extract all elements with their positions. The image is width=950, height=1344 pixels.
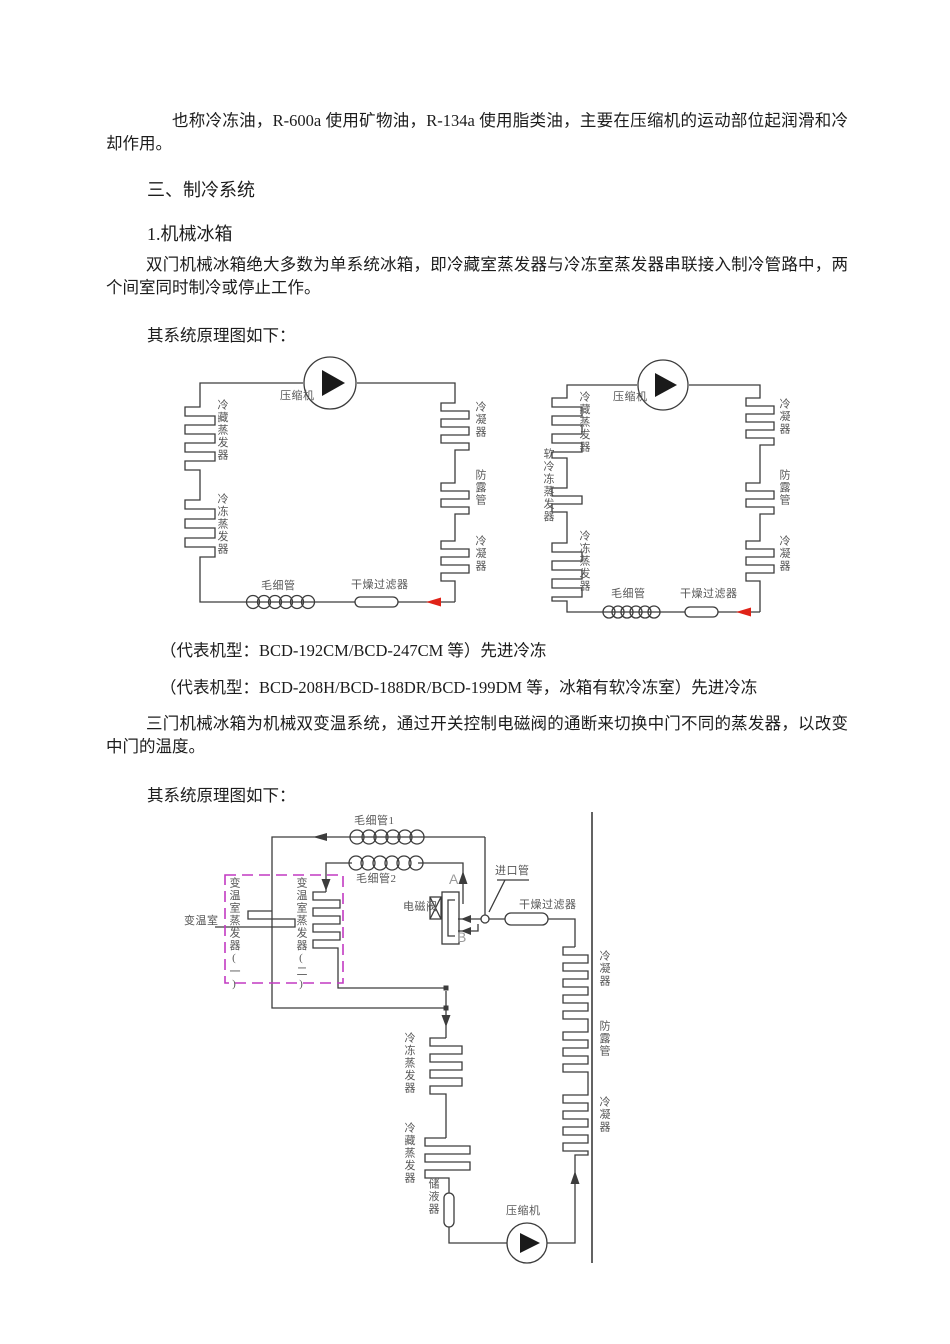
document-page: 也称冷冻油，R-600a 使用矿物油，R-134a 使用脂类油，主要在压缩机的运… [0, 0, 950, 1344]
arrow-left [313, 833, 327, 841]
compressor-triangle [322, 370, 345, 396]
model-caption-1: （代表机型：BCD-192CM/BCD-247CM 等）先进冷冻 [160, 637, 546, 661]
anti-dew-pipe-label: 防露管 [777, 469, 790, 507]
dry-filter-label: 干燥过滤器 [519, 899, 577, 912]
condenser-label: 冷凝器 [473, 401, 486, 439]
valve-port-a-label: A [449, 873, 459, 886]
condenser-label: 冷凝器 [597, 1096, 610, 1134]
dry-filter-symbol [505, 913, 548, 925]
variable-room-label: 变温室 [184, 915, 219, 928]
var-evaporator1-label: 变温室蒸发器(一) [227, 877, 240, 992]
paragraph-two-door: 双门机械冰箱绝大多数为单系统冰箱，即冷藏室蒸发器与冷冻室蒸发器串联接入制冷管路中… [106, 254, 848, 299]
condenser-label: 冷凝器 [597, 950, 610, 988]
pipe-right-loop [357, 383, 469, 602]
capillary-label: 毛细管 [611, 588, 646, 601]
accumulator-symbol [444, 1193, 454, 1227]
diagram-intro-1: 其系统原理图如下： [147, 322, 296, 346]
variable-room-box [225, 875, 343, 983]
dry-filter-symbol [355, 597, 398, 607]
arrow-down-junction [442, 1015, 451, 1027]
compressor-label: 压缩机 [506, 1205, 541, 1218]
flow-arrow [426, 598, 441, 607]
paragraph-oil: 也称冷冻油，R-600a 使用矿物油，R-134a 使用脂类油，主要在压缩机的运… [106, 110, 848, 155]
diagram1-pipes [185, 357, 469, 609]
freezer-evaporator-label: 冷冻蒸发器 [402, 1032, 415, 1095]
condenser-column [547, 947, 588, 1243]
compressor-triangle [655, 373, 677, 397]
paragraph-three-door: 三门机械冰箱为机械双变温系统，通过开关控制电磁阀的通断来切换中门不同的蒸发器，以… [106, 713, 848, 758]
section-heading: 三、制冷系统 [147, 176, 255, 202]
compressor-inlet-line [449, 1227, 507, 1243]
condenser-label: 冷凝器 [777, 398, 790, 436]
arrow-up-a [459, 871, 468, 884]
solenoid-valve-label: 电磁阀 [403, 901, 438, 914]
arrow-up-return [571, 1171, 580, 1184]
subsection-heading: 1.机械冰箱 [147, 220, 233, 246]
inlet-pipe-label: 进口管 [495, 865, 530, 878]
soft-freezer-evaporator-label: 软冷冻蒸发器 [541, 448, 554, 523]
compressor-label: 压缩机 [613, 391, 648, 404]
capillary2-label: 毛细管2 [356, 873, 397, 886]
freezer-evaporator-label: 冷冻蒸发器 [577, 530, 590, 593]
capillary-label: 毛细管 [261, 580, 296, 593]
capillary2-coil [349, 856, 423, 870]
dry-filter-label: 干燥过滤器 [680, 588, 738, 601]
freezer-evaporator-label: 冷冻蒸发器 [215, 493, 228, 556]
fridge-evaporator-label: 冷藏蒸发器 [577, 391, 590, 454]
junction-dot [444, 986, 449, 991]
arrow-down [322, 879, 331, 891]
compressor-triangle [520, 1233, 540, 1253]
arrow-into-valve-1 [461, 915, 471, 923]
accumulator-label: 储液器 [426, 1178, 439, 1216]
fridge-evaporator-label: 冷藏蒸发器 [215, 399, 228, 462]
anti-dew-pipe-label: 防露管 [597, 1020, 610, 1058]
condenser-label: 冷凝器 [473, 535, 486, 573]
dry-filter-symbol [685, 607, 718, 617]
valve-bracket [448, 900, 455, 936]
three-door-system-diagram [0, 800, 950, 1300]
condenser-label: 冷凝器 [777, 535, 790, 573]
inlet-junction [481, 915, 489, 923]
valve-port-b-label: B [457, 931, 467, 944]
junction-dot [444, 1006, 449, 1011]
compressor-label: 压缩机 [280, 390, 315, 403]
flow-arrow [736, 608, 751, 617]
fridge-evaporator-label: 冷藏蒸发器 [402, 1122, 415, 1185]
var-evaporator2-label: 变温室蒸发器(二) [294, 877, 307, 992]
capillary2-left [326, 863, 352, 892]
dry-filter-label: 干燥过滤器 [351, 579, 409, 592]
anti-dew-pipe-label: 防露管 [473, 469, 486, 507]
pipe-right-loop [689, 385, 774, 612]
freezer-evaporator-coil [430, 1038, 462, 1138]
capillary1-label: 毛细管1 [354, 815, 395, 828]
model-caption-2: （代表机型：BCD-208H/BCD-188DR/BCD-199DM 等，冰箱有… [160, 674, 757, 698]
